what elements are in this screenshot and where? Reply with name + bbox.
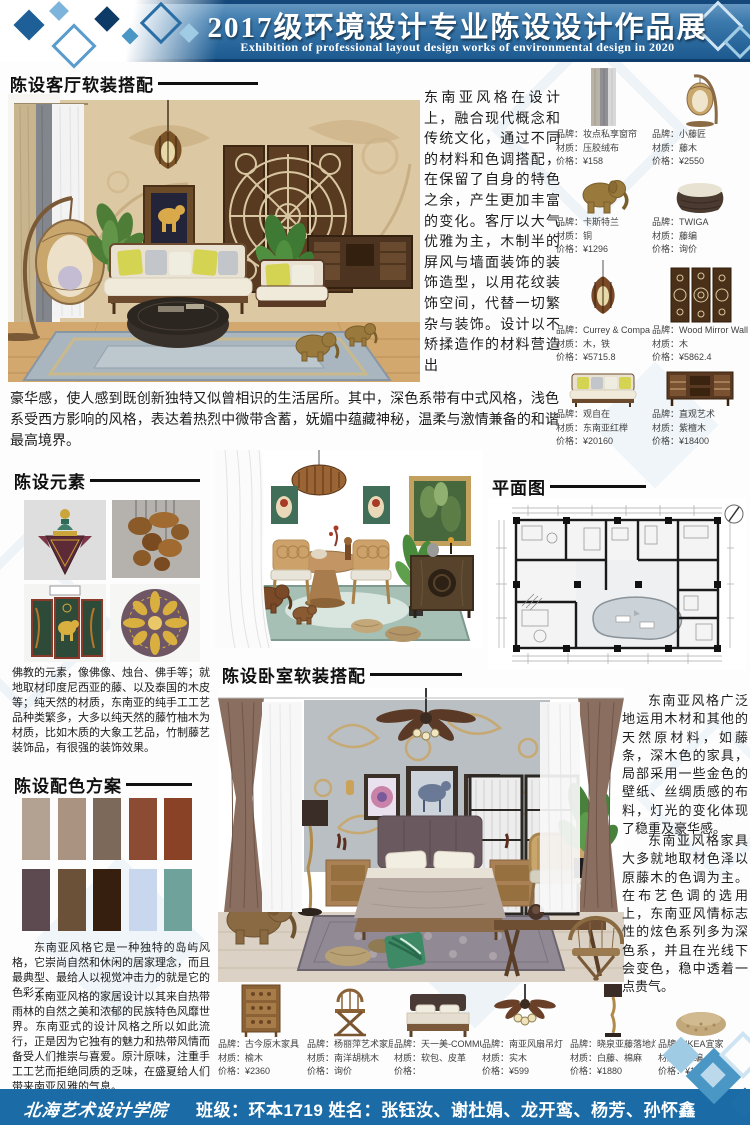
product-price-line: 价格：¥2550 bbox=[652, 155, 748, 169]
price-label: 价格： bbox=[307, 1066, 334, 1076]
section-header-living: 陈设客厅软装搭配 bbox=[10, 71, 258, 96]
color-swatch bbox=[164, 798, 192, 860]
product-material-line: 材质：压胶绒布 bbox=[556, 142, 650, 156]
price-label: 价格： bbox=[556, 352, 583, 362]
product-brand-line: 品牌：晓泉亚藤落地灯 bbox=[570, 1038, 656, 1052]
brand-value: TWIGA bbox=[679, 217, 709, 227]
material-value: 南洋胡桃木 bbox=[334, 1053, 379, 1063]
price-label: 价格： bbox=[556, 244, 583, 254]
product-price-line: 价格：¥20160 bbox=[556, 435, 650, 449]
buddha-ornament-image bbox=[24, 500, 106, 580]
color-swatch bbox=[58, 798, 86, 860]
material-value: 实木 bbox=[509, 1053, 527, 1063]
brand-value: 晓泉亚藤落地灯 bbox=[597, 1039, 656, 1049]
product-card: 品牌：直观艺术 材质：紫檀木 价格：¥18400 bbox=[652, 362, 748, 449]
elephant-statue-icon bbox=[556, 170, 650, 216]
price-label: 价格： bbox=[652, 352, 679, 362]
material-value: 木，铁 bbox=[583, 339, 610, 349]
brand-value: 古今原木家具 bbox=[245, 1039, 299, 1049]
product-card: 品牌：晓泉亚藤落地灯 材质：白藤、棉麻 价格：¥1880 bbox=[570, 980, 656, 1079]
product-card: 品牌：古今原木家具 材质：榆木 价格：¥2360 bbox=[218, 980, 304, 1079]
brand-label: 品牌： bbox=[556, 409, 583, 419]
material-label: 材质： bbox=[556, 339, 583, 349]
product-brand-line: 品牌：南亚风扇吊灯 bbox=[482, 1038, 568, 1052]
product-brand-line: 品牌：Wood Mirror Wall Pane bbox=[652, 324, 750, 338]
price-value: 询价 bbox=[334, 1066, 352, 1076]
bedroom-image bbox=[218, 688, 624, 982]
brand-label: 品牌： bbox=[652, 217, 679, 227]
color-swatch bbox=[129, 869, 157, 931]
brand-value: Wood Mirror Wall Pane bbox=[679, 325, 750, 335]
price-value: ¥2550 bbox=[679, 156, 704, 166]
material-label: 材质： bbox=[218, 1053, 245, 1063]
header-banner: 2017级环境设计专业陈设设计作品展 Exhibition of profess… bbox=[0, 0, 750, 62]
product-price-line: 价格：¥2360 bbox=[218, 1065, 304, 1079]
section-header-elements: 陈设元素 bbox=[14, 468, 200, 493]
material-value: 藤木 bbox=[679, 143, 697, 153]
product-material-line: 材质：铜 bbox=[556, 230, 650, 244]
price-value: ¥2360 bbox=[245, 1066, 270, 1076]
poster-subtitle: Exhibition of professional layout design… bbox=[185, 40, 730, 55]
brand-label: 品牌： bbox=[218, 1039, 245, 1049]
brand-label: 品牌： bbox=[556, 217, 583, 227]
section-header-bedroom: 陈设卧室软装搭配 bbox=[222, 662, 462, 687]
product-material-line: 材质：软包、皮革 bbox=[394, 1052, 482, 1066]
product-card: 品牌：杨丽萍艺术家居 材质：南洋胡桃木 价格：询价 bbox=[307, 980, 393, 1079]
material-label: 材质： bbox=[652, 423, 679, 433]
product-brand-line: 品牌：卡斯特兰 bbox=[556, 216, 650, 230]
material-value: 木 bbox=[679, 339, 688, 349]
brand-value: 杨丽萍艺术家居 bbox=[334, 1039, 393, 1049]
product-price-line: 价格：询价 bbox=[307, 1065, 393, 1079]
product-card: 品牌：卡斯特兰 材质：铜 价格：¥1296 bbox=[556, 170, 650, 257]
class-and-names: 班级：环本1719 姓名：张钰汝、谢杜娟、龙开鸾、杨芳、孙怀鑫 bbox=[196, 1096, 696, 1121]
color-swatch bbox=[22, 798, 50, 860]
product-brand-line: 品牌：直观艺术 bbox=[652, 408, 748, 422]
product-material-line: 材质：藤编 bbox=[652, 230, 748, 244]
product-card: 品牌：妆点私享窗帘 材质：压胶绒布 价格：¥158 bbox=[556, 64, 650, 169]
product-brand-line: 品牌：观自在 bbox=[556, 408, 650, 422]
color-swatch bbox=[93, 869, 121, 931]
price-value: ¥1296 bbox=[583, 244, 608, 254]
footer-bar: 北海艺术设计学院 班级：环本1719 姓名：张钰汝、谢杜娟、龙开鸾、杨芳、孙怀鑫 bbox=[0, 1089, 750, 1125]
price-label: 价格： bbox=[482, 1066, 509, 1076]
material-label: 材质： bbox=[652, 143, 679, 153]
folding-chair-icon bbox=[307, 980, 393, 1038]
product-material-line: 材质：榆木 bbox=[218, 1052, 304, 1066]
material-value: 藤编 bbox=[679, 231, 697, 241]
price-label: 价格： bbox=[652, 244, 679, 254]
product-brand-line: 品牌：妆点私享窗帘 bbox=[556, 128, 650, 142]
product-card: 品牌：Currey & Company 材质：木，铁 价格：¥5715.8 bbox=[556, 258, 650, 365]
brand-label: 品牌： bbox=[556, 129, 583, 139]
product-price-line: 价格：¥599 bbox=[482, 1065, 568, 1079]
brand-value: 天一美-COMMUNE bbox=[421, 1039, 482, 1049]
header-rule bbox=[370, 673, 462, 676]
product-price-line: 价格： bbox=[394, 1065, 482, 1079]
header-rule bbox=[158, 82, 258, 85]
product-material-line: 材质：东南亚红榉 bbox=[556, 422, 650, 436]
price-label: 价格： bbox=[394, 1066, 421, 1076]
brand-label: 品牌： bbox=[652, 325, 679, 335]
product-card: 品牌：Wood Mirror Wall Pane 材质：木 价格：¥5862.4 bbox=[652, 258, 750, 365]
color-swatch bbox=[93, 798, 121, 860]
product-brand-line: 品牌：天一美-COMMUNE bbox=[394, 1038, 482, 1052]
brand-value: 小藤匠 bbox=[679, 129, 706, 139]
section-header-plan: 平面图 bbox=[492, 474, 646, 499]
material-label: 材质： bbox=[482, 1053, 509, 1063]
product-card: 品牌：南亚风扇吊灯 材质：实木 价格：¥599 bbox=[482, 980, 568, 1079]
material-value: 紫檀木 bbox=[679, 423, 706, 433]
brand-label: 品牌： bbox=[307, 1039, 334, 1049]
color-swatch bbox=[164, 869, 192, 931]
product-brand-line: 品牌：小藤匠 bbox=[652, 128, 748, 142]
brand-value: 妆点私享窗帘 bbox=[583, 129, 637, 139]
material-value: 白藤、棉麻 bbox=[597, 1053, 642, 1063]
brand-label: 品牌： bbox=[556, 325, 583, 335]
floor-plan-image bbox=[488, 498, 746, 670]
rattan-ottoman-icon bbox=[652, 170, 748, 216]
poster: 2017级环境设计专业陈设设计作品展 Exhibition of profess… bbox=[0, 0, 750, 1125]
elements-body-text: 佛教的元素，像佛像、烛台、佛手等；就地取材印度尼西亚的藤、以及泰国的木皮等；纯天… bbox=[12, 666, 210, 756]
tv-cabinet-icon bbox=[652, 362, 748, 408]
header-rule bbox=[126, 783, 192, 786]
palette-paragraph-2: 东南亚风格的家居设计以其来自热带雨林的自然之美和浓郁的民族特色风靡世界。东南亚式… bbox=[12, 990, 210, 1095]
bed-icon bbox=[394, 980, 482, 1038]
product-card: 品牌：天一美-COMMUNE 材质：软包、皮革 价格： bbox=[394, 980, 482, 1079]
material-label: 材质： bbox=[307, 1053, 334, 1063]
price-value: ¥599 bbox=[509, 1066, 529, 1076]
brand-label: 品牌： bbox=[652, 409, 679, 419]
living-intro-continued: 豪华感，使人感到既创新独特又似曾相识的生活居所。其中，深色系带有中式风格，浅色系… bbox=[10, 388, 559, 451]
material-label: 材质： bbox=[556, 231, 583, 241]
material-label: 材质： bbox=[556, 423, 583, 433]
price-label: 价格： bbox=[556, 156, 583, 166]
price-value: ¥5715.8 bbox=[583, 352, 616, 362]
brand-value: 南亚风扇吊灯 bbox=[509, 1039, 563, 1049]
carved-cabinet-icon bbox=[218, 980, 304, 1038]
product-material-line: 材质：木 bbox=[652, 338, 750, 352]
section-title: 陈设元素 bbox=[14, 468, 86, 493]
material-value: 压胶绒布 bbox=[583, 143, 619, 153]
price-value: ¥158 bbox=[583, 156, 603, 166]
brand-value: 观自在 bbox=[583, 409, 610, 419]
product-brand-line: 品牌：TWIGA bbox=[652, 216, 748, 230]
product-material-line: 材质：白藤、棉麻 bbox=[570, 1052, 656, 1066]
living-room-image bbox=[8, 94, 420, 382]
header-rule bbox=[90, 479, 200, 482]
material-label: 材质： bbox=[652, 339, 679, 349]
brand-label: 品牌： bbox=[394, 1039, 421, 1049]
product-price-line: 价格：¥18400 bbox=[652, 435, 748, 449]
product-brand-line: 品牌：Currey & Company bbox=[556, 324, 650, 338]
carved-medallion-image bbox=[110, 584, 200, 662]
elephant-triptych-image bbox=[24, 584, 106, 662]
price-label: 价格： bbox=[652, 436, 679, 446]
brand-label: 品牌： bbox=[652, 129, 679, 139]
curtain-icon bbox=[556, 64, 650, 128]
price-label: 价格： bbox=[652, 156, 679, 166]
price-label: 价格： bbox=[218, 1066, 245, 1076]
material-value: 软包、皮革 bbox=[421, 1053, 466, 1063]
hanging-chair-icon bbox=[652, 64, 748, 128]
living-intro-text: 东南亚风格在设计上，融合现代概念和传统文化，通过不同的材料和色调搭配，在保留了自… bbox=[424, 87, 560, 375]
school-name: 北海艺术设计学院 bbox=[23, 1096, 170, 1121]
price-label: 价格： bbox=[556, 436, 583, 446]
brand-label: 品牌： bbox=[482, 1039, 509, 1049]
brand-value: Currey & Company bbox=[583, 325, 650, 335]
price-value: ¥18400 bbox=[679, 436, 709, 446]
material-value: 东南亚红榉 bbox=[583, 423, 628, 433]
product-material-line: 材质：木，铁 bbox=[556, 338, 650, 352]
brand-value: 直观艺术 bbox=[679, 409, 715, 419]
product-material-line: 材质：藤木 bbox=[652, 142, 748, 156]
color-swatch bbox=[58, 869, 86, 931]
section-title: 陈设配色方案 bbox=[14, 772, 122, 797]
material-label: 材质： bbox=[652, 231, 679, 241]
pouf-icon bbox=[658, 980, 744, 1038]
product-card: 品牌：TWIGA 材质：藤编 价格：询价 bbox=[652, 170, 748, 257]
sofa-icon bbox=[556, 362, 650, 408]
section-title: 陈设卧室软装搭配 bbox=[222, 662, 366, 687]
section-title: 陈设客厅软装搭配 bbox=[10, 71, 154, 96]
section-header-palette: 陈设配色方案 bbox=[14, 772, 192, 797]
palette-swatches bbox=[22, 798, 192, 931]
bedroom-text-2: 东南亚风格家具大多就地取材色泽以原藤木的色调为主。在布艺色调的选用上，东南亚风情… bbox=[622, 832, 748, 997]
pendant-lamp-icon bbox=[556, 258, 650, 324]
dining-room-image bbox=[215, 450, 483, 648]
price-label: 价格： bbox=[570, 1066, 597, 1076]
material-label: 材质： bbox=[556, 143, 583, 153]
price-value: 询价 bbox=[679, 244, 697, 254]
product-card: 品牌：小藤匠 材质：藤木 价格：¥2550 bbox=[652, 64, 748, 169]
brand-label: 品牌： bbox=[570, 1039, 597, 1049]
product-brand-line: 品牌：古今原木家具 bbox=[218, 1038, 304, 1052]
product-material-line: 材质：南洋胡桃木 bbox=[307, 1052, 393, 1066]
product-card: 品牌：观自在 材质：东南亚红榉 价格：¥20160 bbox=[556, 362, 650, 449]
header-rule bbox=[550, 485, 646, 488]
product-material-line: 材质：紫檀木 bbox=[652, 422, 748, 436]
price-value: ¥1880 bbox=[597, 1066, 622, 1076]
product-brand-line: 品牌：杨丽萍艺术家居 bbox=[307, 1038, 393, 1052]
floor-lamp-icon bbox=[570, 980, 656, 1038]
carved-wall-panel-icon bbox=[652, 258, 750, 324]
product-price-line: 价格：¥158 bbox=[556, 155, 650, 169]
wood-pendant-cluster-image bbox=[112, 500, 200, 578]
price-value: ¥20160 bbox=[583, 436, 613, 446]
section-title: 平面图 bbox=[492, 474, 546, 499]
bedroom-text-1: 东南亚风格广泛地运用木材和其他的天然原材料，如藤条，深木色的家具，局部采用一些金… bbox=[622, 692, 748, 838]
product-price-line: 价格：¥1880 bbox=[570, 1065, 656, 1079]
material-value: 榆木 bbox=[245, 1053, 263, 1063]
material-label: 材质： bbox=[570, 1053, 597, 1063]
product-material-line: 材质：实木 bbox=[482, 1052, 568, 1066]
brand-value: 卡斯特兰 bbox=[583, 217, 619, 227]
product-price-line: 价格：¥1296 bbox=[556, 243, 650, 257]
color-swatch bbox=[129, 798, 157, 860]
ceiling-fan-icon bbox=[482, 980, 568, 1038]
price-value: ¥5862.4 bbox=[679, 352, 712, 362]
product-price-line: 价格：询价 bbox=[652, 243, 748, 257]
material-value: 铜 bbox=[583, 231, 592, 241]
material-label: 材质： bbox=[394, 1053, 421, 1063]
color-swatch bbox=[22, 869, 50, 931]
